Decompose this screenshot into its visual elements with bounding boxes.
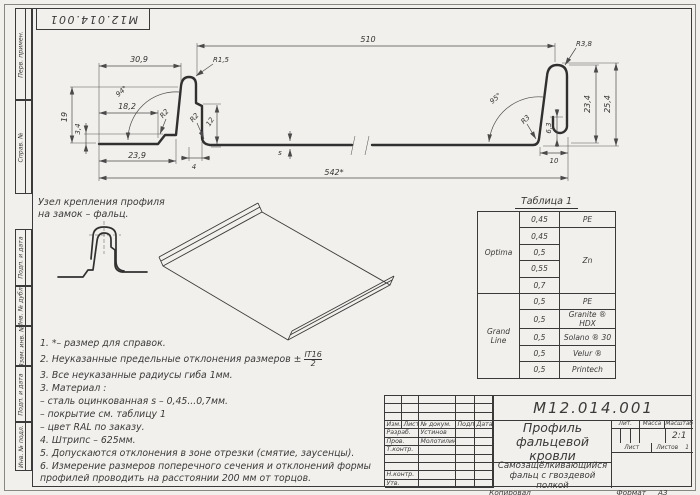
role-utv: Утв. <box>385 480 419 488</box>
titleblock-subtitle: Самозащёлкивающийся фальц с гвоздевой по… <box>493 463 611 488</box>
coating-cell: Solano ® 30 <box>560 329 616 345</box>
break-marks <box>351 136 369 155</box>
detail-female-hook <box>58 233 147 277</box>
thickness-cell: 0,5 <box>520 310 560 329</box>
note-4: 4. Штрипс – 625мм. <box>40 435 378 447</box>
thickness-cell: 0,5 <box>520 362 560 378</box>
sheets-value: 1 <box>685 445 689 451</box>
massa-header: Масса <box>640 421 666 429</box>
tolerance-fraction: IT162 <box>304 351 321 368</box>
sheets-label: Листов <box>656 445 678 451</box>
table-row: Optima 0,45 PE <box>478 212 616 228</box>
dim-542-label: 542* <box>324 168 343 177</box>
note-5: 5. Допускаются отклонения в зоне отрезки… <box>40 448 378 460</box>
format-strip: Формат А3 <box>594 488 690 495</box>
note-material-1: – сталь оцинкованная s – 0,45...0,7мм. <box>40 396 378 408</box>
dim-s-thickness-label: s <box>278 149 282 157</box>
sheets-cell: Листов 1 <box>652 443 693 452</box>
coating-cell-zn: Zn <box>560 228 616 294</box>
dim-r3-label: R3 <box>519 113 531 125</box>
dim-510-label: 510 <box>360 35 375 44</box>
kopiroval-label: Копировал <box>430 488 590 495</box>
iso-seam-edges <box>159 203 394 340</box>
dim-10-label: 10 <box>550 157 559 165</box>
titleblock-cell <box>385 404 402 412</box>
detail-caption: Узел крепления профиля на замок – фальц. <box>38 197 198 221</box>
lit-massa-masshtab-block: Лит. Масса Масштаб 2:1 <box>611 421 693 443</box>
col-header-podp: Подп. <box>456 421 475 429</box>
profile-cross-section-path <box>99 65 567 145</box>
dim-3-4-label: 3,4 <box>74 123 82 134</box>
dim-r3-8-label: R3,8 <box>576 40 593 48</box>
format-value: А3 <box>658 488 668 495</box>
dim-19-label: 19 <box>60 112 69 122</box>
sheet-row: Лист Листов 1 <box>611 443 693 452</box>
role-n-kontr: Н.контр. <box>385 471 419 479</box>
brand-cell-grand-line: Grand Line <box>478 293 520 378</box>
dim-r2-step-label: R2 <box>158 107 171 120</box>
dim-95deg-label: 95° <box>488 91 503 105</box>
note-6: 6. Измерение размеров поперечного сечени… <box>40 461 378 484</box>
dim-4-label: 4 <box>192 163 196 171</box>
organization-cell <box>611 452 693 488</box>
coating-cell: PE <box>560 293 616 309</box>
titleblock-cell <box>385 413 402 421</box>
thickness-cell: 0,5 <box>520 244 560 260</box>
lit-subcell <box>612 429 621 443</box>
col-header-data: Дата <box>475 421 493 429</box>
format-label: Формат <box>616 488 646 495</box>
coating-cell: Granite ® HDX <box>560 310 616 329</box>
note-2: 2. Неуказанные предельные отклонения раз… <box>40 351 378 368</box>
title-block: Изм. Лист № докум. Подп. Дата Разраб. Ус… <box>384 395 692 487</box>
fraction-numerator: IT16 <box>304 350 321 359</box>
drawing-sheet: Перв. примен. Справ. № Подп. и дата Инв.… <box>0 0 700 495</box>
titleblock-doc-number: М12.014.001 <box>493 396 693 421</box>
dim-23-4-label: 23,4 <box>583 95 592 113</box>
title-block-signature-grid: Изм. Лист № докум. Подп. Дата Разраб. Ус… <box>385 396 493 488</box>
masshtab-header: Масштаб <box>665 421 693 429</box>
thickness-cell: 0,45 <box>520 228 560 244</box>
dim-30-9-label: 30,9 <box>130 55 148 64</box>
note-3a: 3. Все неуказанные радиусы гиба 1мм. <box>40 370 378 382</box>
fraction-denominator: 2 <box>304 359 321 368</box>
notes-block: 1. *– размер для справок. 2. Неуказанные… <box>40 338 378 486</box>
col-header-doc: № докум. <box>419 421 456 429</box>
dim-r1-5-label: R1,5 <box>213 56 230 64</box>
lit-subcell <box>621 429 630 443</box>
dim-6-3-label: 6,3 <box>545 122 553 133</box>
detail-caption-line1: Узел крепления профиля <box>38 197 198 209</box>
col-header-list: Лист <box>402 421 419 429</box>
thickness-cell: 0,5 <box>520 329 560 345</box>
note-1: 1. *– размер для справок. <box>40 338 378 350</box>
note-3b: 3. Материал : <box>40 383 378 395</box>
massa-value-cell <box>640 429 666 443</box>
thickness-cell: 0,45 <box>520 212 560 228</box>
thickness-cell: 0,5 <box>520 293 560 309</box>
thickness-cell: 0,7 <box>520 277 560 293</box>
lit-subcell <box>631 429 640 443</box>
dim-94deg-label: 94° <box>114 84 129 98</box>
thickness-cell: 0,5 <box>520 345 560 361</box>
dim-18-2-label: 18,2 <box>118 102 136 111</box>
seam-lock-detail <box>58 221 147 277</box>
sheet-label: Лист <box>612 443 652 452</box>
titleblock-cell <box>385 396 402 404</box>
name-prov: Молотилин <box>419 438 456 446</box>
scale-value: 2:1 <box>666 429 693 443</box>
isometric-panel-view <box>159 203 394 340</box>
coating-cell: Velur ® <box>560 345 616 361</box>
col-header-izm: Изм. <box>385 421 402 429</box>
coating-cell: PE <box>560 212 616 228</box>
note-2-text: 2. Неуказанные предельные отклонения раз… <box>40 354 301 365</box>
dim-23-9-label: 23,9 <box>128 151 146 160</box>
note-material-3: – цвет RAL по заказу. <box>40 422 378 434</box>
role-razrab: Разраб. <box>385 429 419 437</box>
note-material-2: – покрытие см. таблицу 1 <box>40 409 378 421</box>
table-title: Таблица 1 <box>477 196 616 207</box>
titleblock-part-name: Профиль фальцевой кровли <box>493 421 611 463</box>
lit-header: Лит. <box>612 421 640 429</box>
role-prov: Пров. <box>385 438 419 446</box>
thickness-cell: 0,55 <box>520 261 560 277</box>
dim-12-label: 12 <box>205 116 217 128</box>
name-razrab: Устинов <box>419 429 456 437</box>
table-row: Grand Line 0,5 PE <box>478 293 616 309</box>
dimension-lines <box>72 46 616 178</box>
detail-caption-line2: на замок – фальц. <box>38 209 198 221</box>
coating-cell: Printech <box>560 362 616 378</box>
brand-cell-optima: Optima <box>478 212 520 294</box>
dim-25-4-label: 25,4 <box>603 95 612 113</box>
coatings-table: Таблица 1 Optima 0,45 PE 0,45Zn 0,5 0,55… <box>477 196 616 379</box>
extension-lines <box>70 43 619 181</box>
role-t-kontr: Т.контр. <box>385 446 419 454</box>
dim-r2-bottom-label: R2 <box>188 111 201 124</box>
iso-sheet-outline <box>163 212 390 340</box>
